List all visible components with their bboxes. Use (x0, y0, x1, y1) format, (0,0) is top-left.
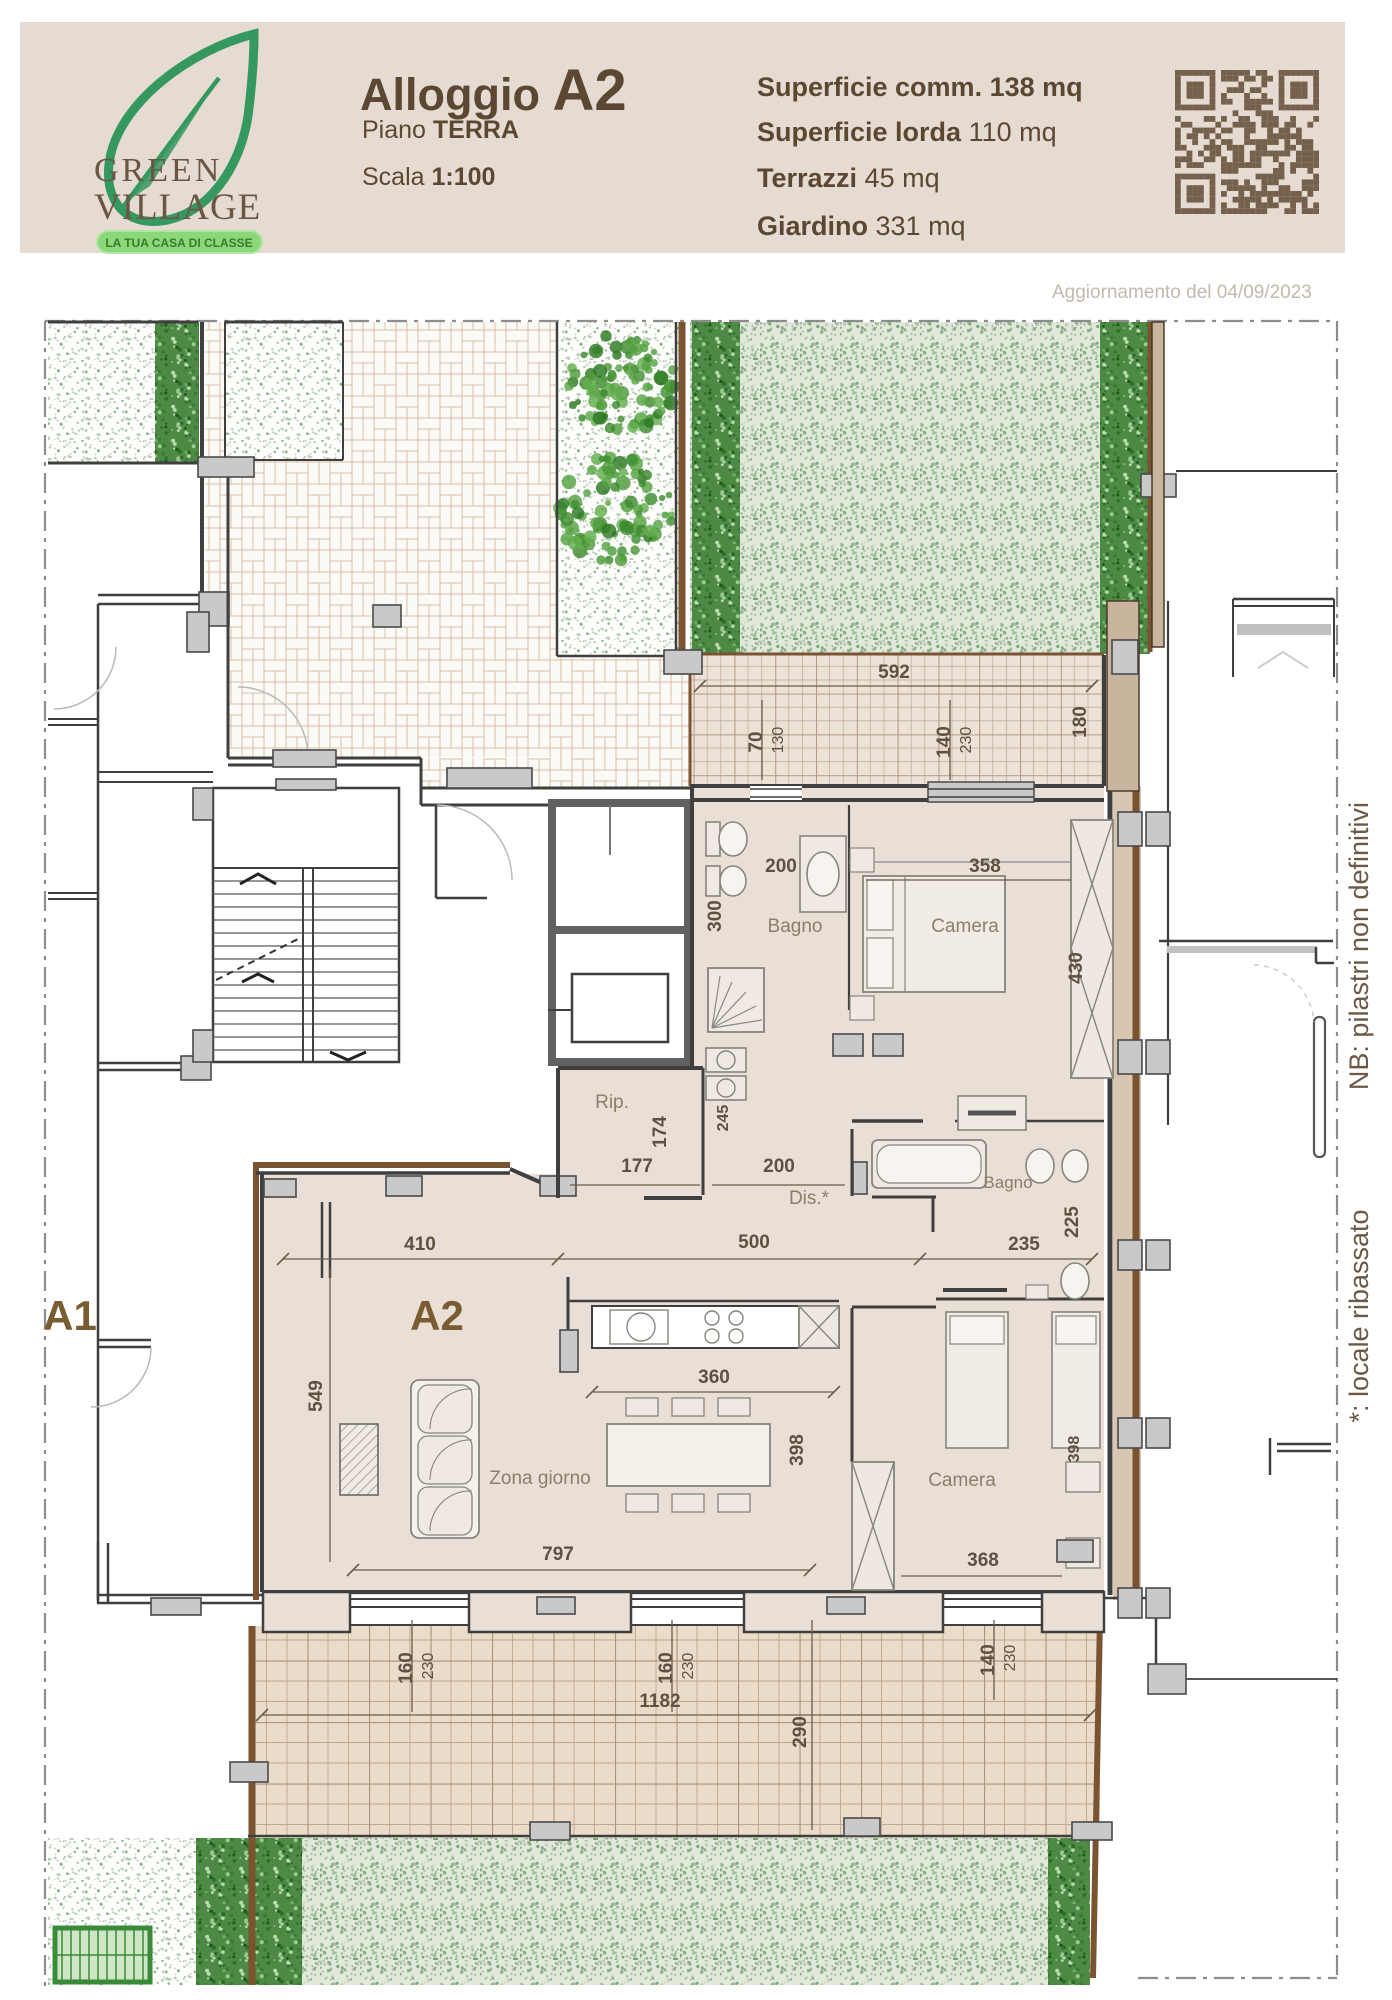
svg-text:70: 70 (746, 731, 767, 752)
svg-text:230: 230 (420, 1653, 437, 1680)
svg-text:235: 235 (1008, 1234, 1040, 1255)
svg-text:Camera: Camera (931, 916, 999, 937)
svg-text:430: 430 (1066, 952, 1087, 984)
svg-text:398: 398 (787, 1434, 808, 1466)
svg-text:1182: 1182 (639, 1691, 680, 1712)
svg-text:358: 358 (969, 856, 1001, 877)
svg-text:300: 300 (705, 900, 726, 932)
svg-text:Bagno: Bagno (768, 916, 823, 937)
svg-text:410: 410 (404, 1234, 436, 1255)
svg-text:225: 225 (1062, 1206, 1083, 1238)
svg-text:140: 140 (978, 1644, 999, 1676)
svg-text:200: 200 (763, 1156, 795, 1177)
svg-text:592: 592 (878, 662, 910, 683)
svg-text:*: locale ribassato: *: locale ribassato (1344, 1209, 1374, 1422)
svg-text:500: 500 (738, 1232, 770, 1253)
svg-text:398: 398 (1066, 1436, 1083, 1463)
svg-text:Bagno: Bagno (983, 1173, 1032, 1192)
svg-text:230: 230 (680, 1653, 697, 1680)
svg-text:160: 160 (396, 1652, 417, 1684)
svg-text:174: 174 (650, 1116, 671, 1148)
svg-text:A2: A2 (410, 1292, 464, 1339)
svg-text:140: 140 (934, 726, 955, 758)
svg-text:290: 290 (790, 1716, 811, 1748)
svg-text:Dis.*: Dis.* (789, 1188, 830, 1209)
svg-text:180: 180 (1070, 706, 1091, 738)
svg-text:549: 549 (306, 1380, 327, 1412)
svg-text:Zona giorno: Zona giorno (489, 1468, 590, 1489)
svg-text:368: 368 (967, 1550, 999, 1571)
svg-text:200: 200 (765, 856, 797, 877)
svg-text:230: 230 (958, 727, 975, 754)
svg-text:160: 160 (656, 1652, 677, 1684)
svg-text:A1: A1 (43, 1292, 97, 1339)
svg-text:Rip.: Rip. (595, 1092, 629, 1113)
svg-text:245: 245 (715, 1105, 732, 1132)
svg-text:177: 177 (621, 1156, 653, 1177)
svg-text:797: 797 (542, 1544, 574, 1565)
svg-text:130: 130 (770, 727, 787, 754)
svg-text:230: 230 (1002, 1645, 1019, 1672)
svg-text:Camera: Camera (928, 1470, 996, 1491)
svg-text:NB: pilastri non definitivi: NB: pilastri non definitivi (1344, 802, 1374, 1090)
svg-text:360: 360 (698, 1367, 730, 1388)
